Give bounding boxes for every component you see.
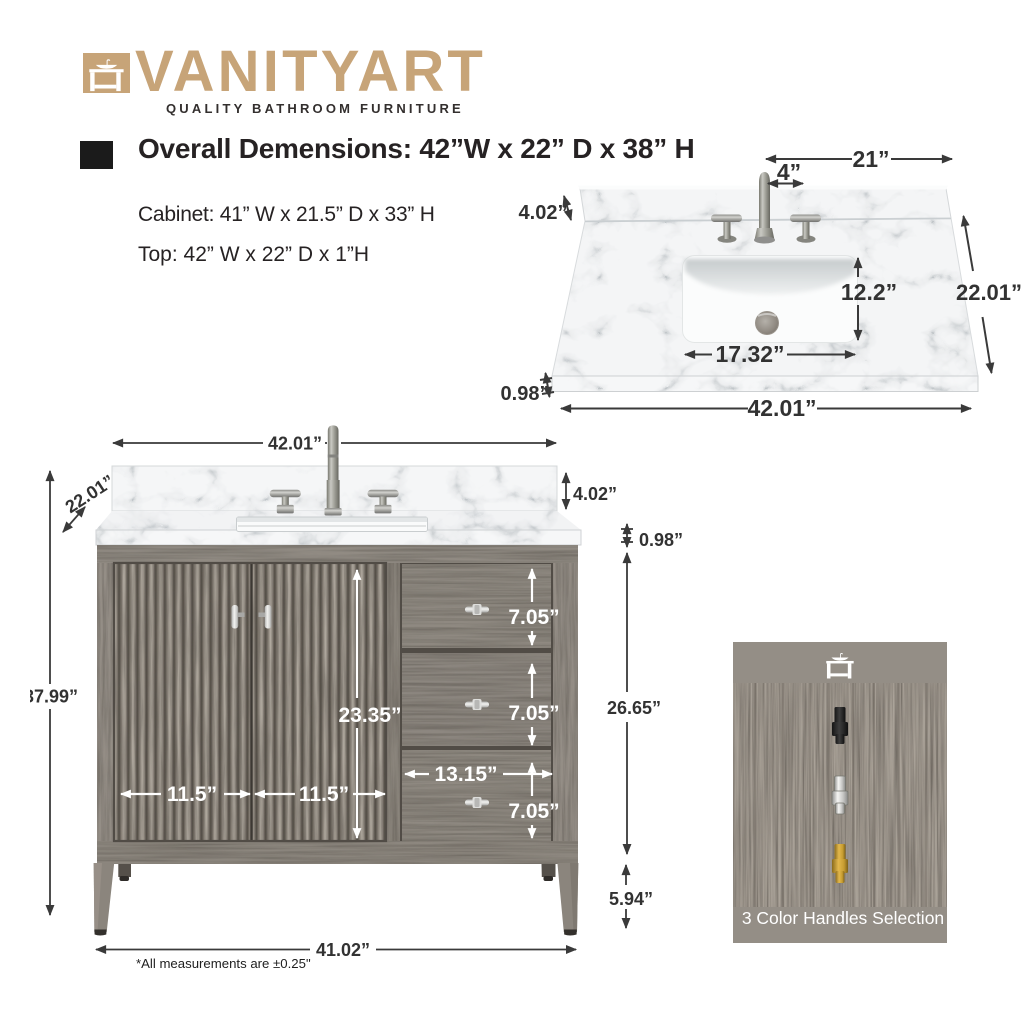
svg-text:4.02”: 4.02” bbox=[573, 484, 617, 504]
svg-text:7.05”: 7.05” bbox=[508, 702, 559, 725]
svg-text:5.94”: 5.94” bbox=[609, 889, 653, 909]
svg-text:13.15”: 13.15” bbox=[434, 763, 497, 786]
svg-text:7.05”: 7.05” bbox=[508, 800, 559, 823]
svg-text:37.99”: 37.99” bbox=[30, 687, 78, 707]
svg-text:42.01”: 42.01” bbox=[747, 395, 816, 421]
svg-text:21”: 21” bbox=[852, 146, 889, 172]
svg-text:0.98”: 0.98” bbox=[639, 530, 683, 550]
svg-text:22.01”: 22.01” bbox=[956, 280, 1022, 305]
svg-text:41.02”: 41.02” bbox=[316, 940, 370, 960]
svg-text:17.32”: 17.32” bbox=[715, 341, 784, 367]
svg-text:26.65”: 26.65” bbox=[607, 698, 661, 718]
svg-text:23.35”: 23.35” bbox=[338, 704, 401, 727]
svg-text:11.5”: 11.5” bbox=[299, 783, 349, 806]
svg-text:12.2”: 12.2” bbox=[841, 279, 897, 305]
svg-text:22.01”: 22.01” bbox=[62, 471, 118, 517]
svg-text:42.01”: 42.01” bbox=[268, 434, 322, 454]
svg-text:7.05”: 7.05” bbox=[508, 606, 559, 629]
svg-text:4.02”: 4.02” bbox=[519, 202, 568, 224]
svg-text:4”: 4” bbox=[777, 159, 801, 185]
svg-text:11.5”: 11.5” bbox=[167, 783, 217, 806]
